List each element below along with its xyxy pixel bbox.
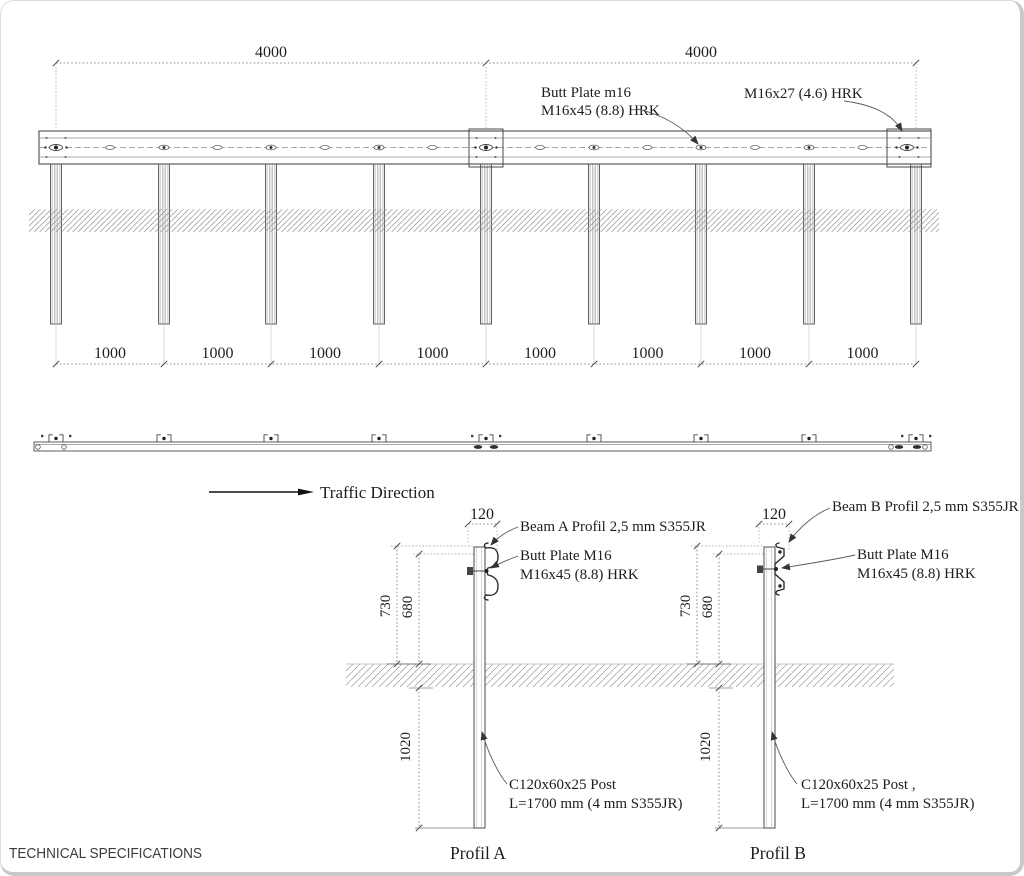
dim-spacing-3: 1000 — [309, 345, 341, 362]
post-profile — [474, 547, 485, 828]
drawing-sheet: 4000 4000 — [0, 0, 1024, 876]
end-bolt-label: M16x27 (4.6) HRK — [744, 86, 863, 102]
traffic-direction-label: Traffic Direction — [320, 483, 435, 502]
post-bolt — [696, 145, 706, 150]
post-bolt — [374, 145, 384, 150]
dim-680: 680 — [400, 596, 416, 619]
leader-line — [782, 555, 855, 568]
dim-spacing-2: 1000 — [202, 345, 234, 362]
bolt-slot — [858, 146, 867, 150]
leader-line — [491, 556, 518, 568]
butt-plate-label-line1: Butt Plate m16 — [541, 85, 632, 101]
dim-1020: 1020 — [698, 732, 714, 762]
bolt-slot — [751, 146, 760, 150]
butt-plate-a-line2: M16x45 (8.8) HRK — [520, 567, 639, 583]
plan-post-bracket — [372, 435, 386, 442]
post-b-label-line2: L=1700 mm (4 mm S355JR) — [801, 796, 974, 812]
post-b-label-line1: C120x60x25 Post , — [801, 777, 916, 793]
post-a-label-line1: C120x60x25 Post — [509, 777, 617, 793]
plan-mark — [471, 435, 473, 437]
post-profile — [764, 547, 775, 828]
plan-rail — [34, 442, 931, 451]
dim-spacing-7: 1000 — [739, 345, 771, 362]
post-bolt — [804, 145, 814, 150]
dim-tick — [913, 60, 919, 66]
ground-hatch — [29, 209, 939, 232]
dim-680: 680 — [700, 596, 716, 619]
post-bolt — [159, 145, 169, 150]
dim-730: 730 — [678, 595, 694, 618]
plan-post-bracket — [694, 435, 708, 442]
plan-mark — [929, 435, 931, 437]
dim-1020: 1020 — [398, 732, 414, 762]
butt-plate-a-line1: Butt Plate M16 — [520, 548, 612, 564]
leader-line — [772, 732, 797, 784]
profil-a-title: Profil A — [450, 843, 506, 863]
plan-mark — [69, 435, 71, 437]
posts — [51, 164, 922, 364]
bolt — [778, 584, 781, 587]
plan-splice-bolt — [474, 445, 482, 449]
leader-line — [789, 508, 830, 542]
plan-post-bracket — [479, 435, 493, 442]
plan-splice-bolt — [895, 445, 903, 449]
butt-plate-b-line1: Butt Plate M16 — [857, 547, 949, 563]
bolt-head — [757, 566, 763, 574]
profil-b-title: Profil B — [750, 843, 806, 863]
elevation-view: 4000 4000 — [29, 44, 939, 367]
leader-line — [491, 527, 518, 545]
plan-post-bracket — [49, 435, 63, 442]
traffic-arrow-head — [298, 489, 314, 496]
leader-line — [482, 732, 507, 784]
plan-bolt-ring — [923, 445, 928, 450]
post-a-label-line2: L=1700 mm (4 mm S355JR) — [509, 796, 682, 812]
butt-plate-label-line2: M16x45 (8.8) HRK — [541, 103, 660, 119]
dim-span-2: 4000 — [685, 44, 717, 61]
traffic-direction: Traffic Direction — [209, 483, 435, 502]
beam-a-label: Beam A Profil 2,5 mm S355JR — [520, 519, 706, 535]
dim-tick — [53, 60, 59, 66]
bolt-slot — [428, 146, 437, 150]
dim-spacing-8: 1000 — [847, 345, 879, 362]
dim-120: 120 — [762, 506, 786, 523]
plan-mark — [41, 435, 43, 437]
dim-span-1: 4000 — [255, 44, 287, 61]
plan-mark — [901, 435, 903, 437]
plan-splice-bolt — [490, 445, 498, 449]
bolt — [485, 569, 489, 573]
dim-spacing-1: 1000 — [94, 345, 126, 362]
plan-post-bracket — [157, 435, 171, 442]
plan-post-bracket — [264, 435, 278, 442]
dim-tick — [483, 60, 489, 66]
plan-post-bracket — [909, 435, 923, 442]
plan-bolt-ring — [62, 445, 67, 450]
leader-line — [844, 101, 902, 131]
bolt — [778, 550, 781, 553]
dim-spacing-6: 1000 — [632, 345, 664, 362]
detail-ground-hatch — [346, 664, 894, 687]
plan-bolt-ring — [36, 445, 41, 450]
bolt-slot — [536, 146, 545, 150]
beam-b-label: Beam B Profil 2,5 mm S355JR — [832, 499, 1019, 515]
bolt-slot — [643, 146, 652, 150]
plan-splice-bolt — [913, 445, 921, 449]
bolt-slot — [106, 146, 115, 150]
plan-view — [34, 435, 931, 451]
plan-post-bracket — [802, 435, 816, 442]
post-bolt — [266, 145, 276, 150]
plan-mark — [499, 435, 501, 437]
dim-730: 730 — [378, 595, 394, 618]
dim-spacing-5: 1000 — [524, 345, 556, 362]
bolt-slot — [213, 146, 222, 150]
dim-spacing-4: 1000 — [417, 345, 449, 362]
plan-bolt-ring — [889, 445, 894, 450]
plan-post-bracket — [587, 435, 601, 442]
bolt-head — [467, 567, 473, 575]
post-bolt — [589, 145, 599, 150]
bolt-slot — [321, 146, 330, 150]
technical-drawing-svg: 4000 4000 — [1, 1, 1024, 876]
butt-plate-b-line2: M16x45 (8.8) HRK — [857, 566, 976, 582]
dim-120: 120 — [470, 506, 494, 523]
sheet-title: TECHNICAL SPECIFICATIONS — [9, 845, 202, 862]
bolt — [774, 567, 778, 571]
detail-ground — [346, 664, 894, 687]
